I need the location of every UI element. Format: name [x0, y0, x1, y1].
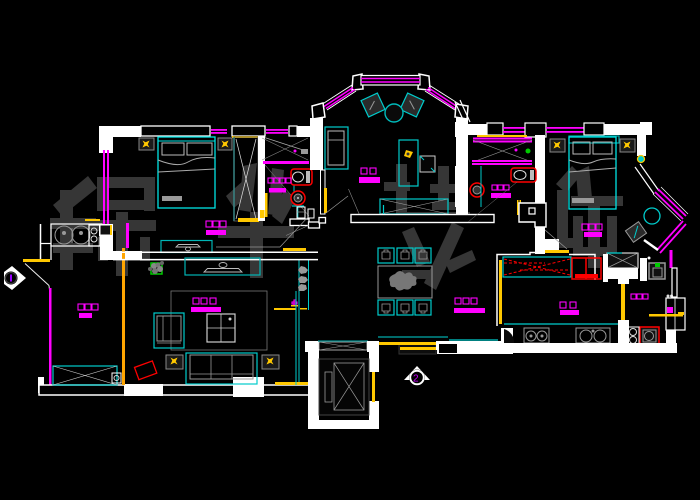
svg-text:2: 2: [413, 374, 419, 385]
